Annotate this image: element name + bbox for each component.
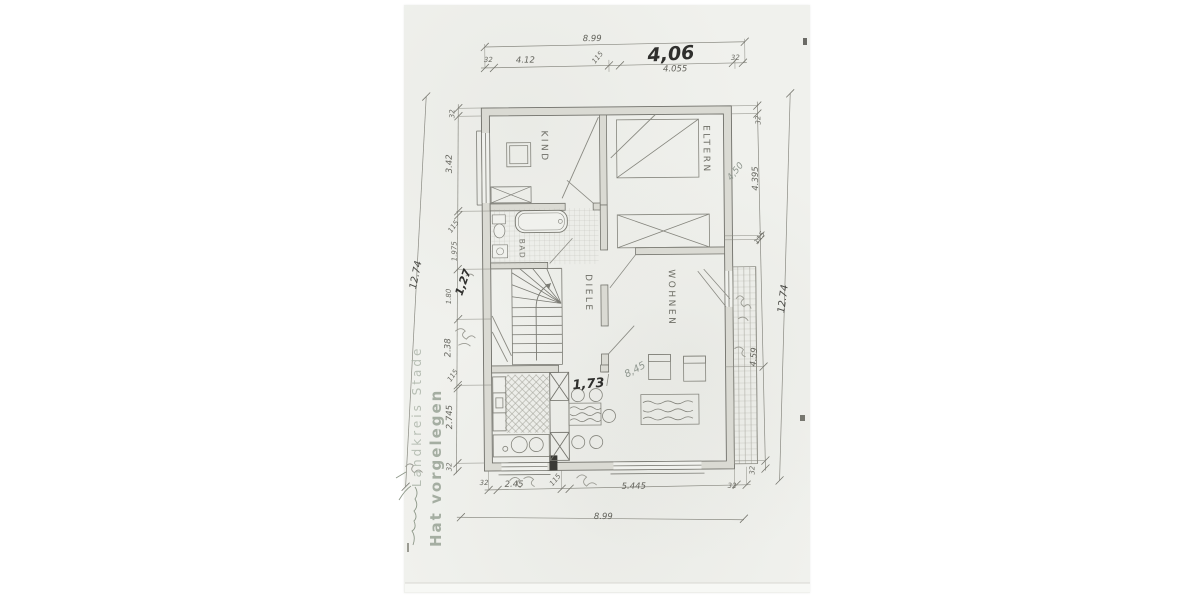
approval-stamp: Landkreis Stade Hat vorgelegen [396, 346, 445, 547]
dining-furniture [569, 388, 616, 448]
dim-right-seg2: 4.59 [749, 347, 760, 367]
bathroom [491, 186, 599, 265]
handwritten-wohnen-note: 8,45 [623, 360, 648, 380]
dim-top-wall-right: 32 [731, 54, 741, 62]
dim-right-wall-top: 32 [754, 115, 762, 125]
dim-right-seg1: 4.395 [751, 166, 761, 190]
dim-left-seg3: 1.80 [445, 288, 453, 304]
kind-furniture [507, 143, 531, 167]
room-label-kind: KIND [539, 130, 549, 162]
sink-basin [511, 437, 527, 453]
sofa [641, 394, 699, 425]
stamp-authority: Landkreis Stade [410, 346, 424, 487]
dim-bottom-overall: 8.99 [594, 512, 613, 522]
stamp-note: Hat vorgelegen [427, 389, 445, 547]
kitchen [493, 374, 550, 456]
dim-top-overall: 8.99 [583, 34, 602, 44]
dim-bottom-seg-left: 2.45 [505, 480, 524, 490]
wc-cistern [492, 215, 505, 224]
handwritten-top-total: 4,06 [646, 42, 695, 67]
washbasin [493, 245, 508, 258]
dim-left-seg2: 1.975 [450, 241, 458, 262]
dim-left-wall-top: 32 [448, 109, 456, 119]
staircase [512, 268, 563, 364]
floor-plan-drawing: KIND ELTERN BAD DIELE WOHNEN [0, 0, 1200, 600]
dim-top-seg-right: 4.055 [663, 64, 687, 74]
wc-bowl [494, 224, 505, 238]
dim-bottom-wall-left: 32 [480, 479, 490, 487]
dim-bottom-wall-right: 32 [728, 482, 738, 490]
kitchen-counter [493, 434, 549, 456]
chimney [550, 372, 570, 460]
room-label-diele: DIELE [583, 274, 593, 313]
dim-left-wall-bottom: 32 [445, 462, 453, 472]
wohnen-furniture [640, 354, 706, 425]
room-label-eltern: ELTERN [700, 125, 710, 174]
handwritten-left-overall: 12.74 [408, 260, 424, 290]
handwritten-hall-width: 1,73 [572, 376, 605, 393]
dim-left-seg1: 3.42 [445, 154, 455, 173]
dim-top-wall-left: 32 [484, 56, 494, 64]
dim-top-seg-left: 4.12 [516, 56, 535, 66]
stove [493, 393, 506, 413]
dim-left-t1: 115 [446, 218, 460, 234]
dim-left-t2: 115 [446, 367, 460, 383]
dim-left-seg5: 2.745 [445, 405, 455, 429]
dim-right-t1: 115 [753, 230, 767, 246]
handwritten-right-overall: 12.74 [776, 284, 791, 314]
room-label-wohnen: WOHNEN [666, 269, 676, 326]
scanned-floor-plan-page: KIND ELTERN BAD DIELE WOHNEN [0, 0, 1200, 600]
dim-top-wall-mid: 115 [590, 49, 605, 65]
dim-left-seg4: 2.38 [443, 338, 453, 358]
dim-bottom-seg-right: 5.445 [622, 482, 646, 492]
room-label-bad: BAD [517, 239, 526, 260]
dim-right-wall-bottom: 32 [748, 465, 756, 475]
sink-basin [529, 438, 543, 452]
